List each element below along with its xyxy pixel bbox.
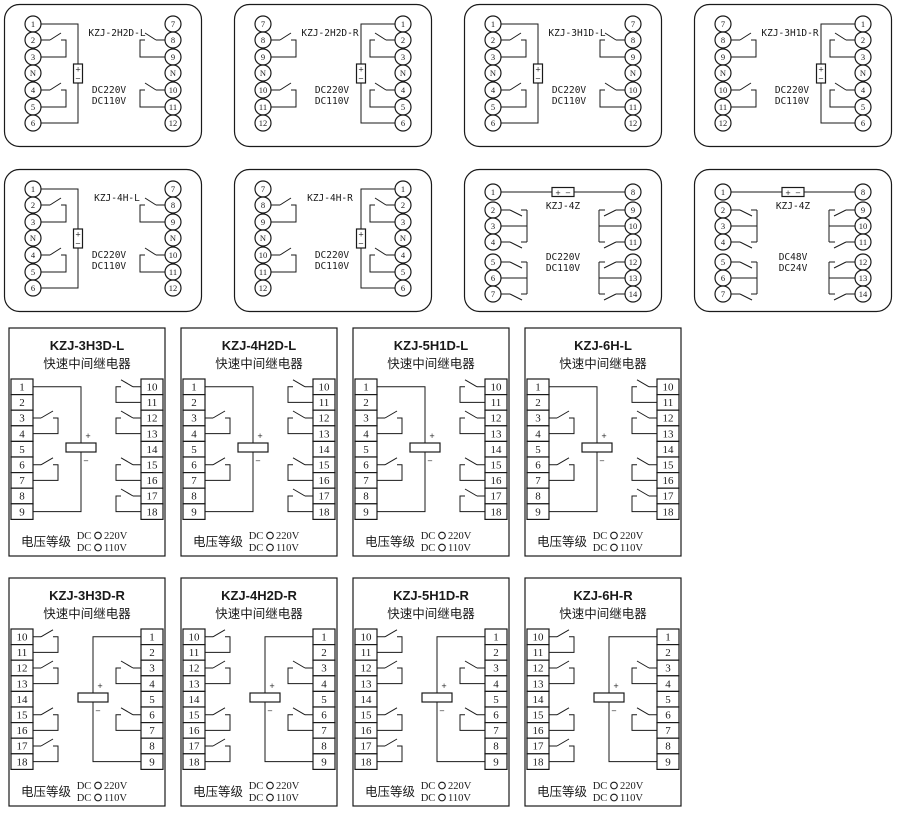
terminal-number: 15 <box>533 710 545 722</box>
terminal-number: 6 <box>401 118 405 128</box>
panel-subtitle: 快速中间继电器 <box>43 606 131 621</box>
terminal-number: 11 <box>147 397 158 409</box>
terminal-number: 11 <box>319 397 330 409</box>
row-4: KZJ-3H3D-R快速中间继电器10111212313414515616717… <box>8 577 900 807</box>
terminal-1: 1 <box>485 184 501 200</box>
panel-kzj-4z: 1234567891011121314+−KZJ-4ZDC48VDC24V <box>693 168 893 313</box>
terminal-number: 13 <box>147 428 159 440</box>
coil-minus-label: − <box>818 75 824 83</box>
terminal-number: 2 <box>535 397 541 409</box>
terminal-number: 8 <box>261 35 265 45</box>
terminal-number: 10 <box>259 250 268 260</box>
terminal-7: 7 <box>485 286 501 302</box>
coil-plus-label: + <box>613 682 619 690</box>
terminal-number: 4 <box>191 428 197 440</box>
terminal-number: 7 <box>631 19 635 29</box>
voltage-class-label: 电压等级 <box>365 534 416 549</box>
terminal-number: 3 <box>721 221 725 231</box>
terminal-number: 3 <box>493 663 499 675</box>
panel-subtitle: 快速中间继电器 <box>559 356 647 371</box>
terminal-number: 9 <box>493 756 499 768</box>
terminal-number: 8 <box>19 491 25 503</box>
voltage-option-circle <box>95 532 102 539</box>
voltage-option-circle <box>439 782 446 789</box>
terminal-number: 8 <box>861 187 865 197</box>
terminal-9: 9 <box>625 49 641 65</box>
terminal-number: 3 <box>491 52 495 62</box>
voltage-line-1: DC220V <box>315 85 350 96</box>
terminal-number: 12 <box>629 257 638 267</box>
terminal-number: 6 <box>191 460 197 472</box>
panel-kzj-4h2d-r: KZJ-4H2D-R快速中间继电器10111212313414515616717… <box>180 577 338 807</box>
terminal-11: 11 <box>255 99 271 115</box>
voltage-option-value: 110V <box>104 543 127 554</box>
terminal-number: 8 <box>721 35 725 45</box>
voltage-option-prefix: DC <box>421 543 436 554</box>
voltage-option-prefix: DC <box>593 793 608 804</box>
voltage-option-prefix: DC <box>249 531 264 542</box>
terminal-number: 7 <box>321 725 327 737</box>
voltage-option-prefix: DC <box>421 793 436 804</box>
terminal-1: 1 <box>395 181 411 197</box>
terminal-5: 5 <box>25 264 41 280</box>
terminal-12: 12 <box>165 115 181 131</box>
terminal-6: 6 <box>25 115 41 131</box>
terminal-N: N <box>395 65 411 81</box>
terminal-number: 16 <box>147 475 159 487</box>
coil-body <box>594 693 624 702</box>
coil-body <box>582 443 612 452</box>
terminal-5: 5 <box>715 254 731 270</box>
panel-kzj-3h1d-l: 123N456789N101112+−KZJ-3H1D-LDC220VDC110… <box>463 3 663 148</box>
panel-kzj-5h1d-l: KZJ-5H1D-L快速中间继电器11021131241351461571681… <box>352 327 510 557</box>
terminal-number: 6 <box>721 273 725 283</box>
voltage-line-2: DC110V <box>315 96 350 107</box>
terminal-number: 18 <box>663 506 675 518</box>
terminal-number: 3 <box>491 221 495 231</box>
terminal-12: 12 <box>165 280 181 296</box>
voltage-line-2: DC110V <box>546 263 581 274</box>
row-1: 123N456789N101112+−KZJ-2H2D-LDC220VDC110… <box>3 3 900 148</box>
terminal-8: 8 <box>255 32 271 48</box>
coil-plus-label: + <box>555 189 561 197</box>
terminal-number: 16 <box>189 725 201 737</box>
coil-minus-label: − <box>611 707 617 715</box>
terminal-2: 2 <box>395 32 411 48</box>
terminal-number: 5 <box>861 102 865 112</box>
coil-minus-label: − <box>358 240 364 248</box>
terminal-number: 12 <box>169 118 178 128</box>
terminal-number: 10 <box>17 632 29 644</box>
voltage-option-circle <box>267 794 274 801</box>
terminal-3: 3 <box>715 218 731 234</box>
terminal-number: 7 <box>491 289 495 299</box>
terminal-number: 10 <box>719 85 728 95</box>
terminal-number: 1 <box>401 19 405 29</box>
voltage-line-2: DC24V <box>779 263 808 274</box>
coil-body <box>238 443 268 452</box>
row-3: KZJ-3H3D-L快速中间继电器11021131241351461571681… <box>8 327 900 557</box>
voltage-option-circle <box>611 782 618 789</box>
voltage-option-value: 220V <box>104 531 128 542</box>
terminal-5: 5 <box>485 254 501 270</box>
terminal-number: 2 <box>19 397 25 409</box>
coil-minus-label: − <box>599 457 605 465</box>
voltage-class-label: 电压等级 <box>193 784 244 799</box>
terminal-number: 8 <box>535 491 541 503</box>
terminal-number: 6 <box>401 283 405 293</box>
coil-plus-label: + <box>75 231 81 239</box>
terminal-10: 10 <box>165 247 181 263</box>
terminal-number: 10 <box>169 85 178 95</box>
voltage-option-value: 220V <box>104 781 128 792</box>
panel-subtitle: 快速中间继电器 <box>215 356 303 371</box>
coil-plus-label: + <box>358 66 364 74</box>
voltage-option-circle <box>95 794 102 801</box>
coil-plus-label: + <box>818 66 824 74</box>
terminal-6: 6 <box>715 270 731 286</box>
terminal-10: 10 <box>625 218 641 234</box>
terminal-11: 11 <box>715 99 731 115</box>
terminal-5: 5 <box>395 99 411 115</box>
coil-minus-label: − <box>535 75 541 83</box>
terminal-12: 12 <box>715 115 731 131</box>
terminal-number: 9 <box>631 205 635 215</box>
panel-kzj-4h-r: 789N101112123N456+−KZJ-4H-RDC220VDC110V <box>233 168 433 313</box>
terminal-10: 10 <box>165 82 181 98</box>
terminal-number: 2 <box>149 647 155 659</box>
voltage-line-1: DC220V <box>546 252 581 263</box>
voltage-line-2: DC110V <box>775 96 810 107</box>
coil-plus-label: + <box>97 682 103 690</box>
terminal-number: 1 <box>31 184 35 194</box>
terminal-number: 16 <box>361 725 373 737</box>
terminal-number: 12 <box>319 413 330 425</box>
coil-minus-label: − <box>795 189 801 197</box>
voltage-option-prefix: DC <box>77 781 92 792</box>
terminal-1: 1 <box>485 16 501 32</box>
terminal-number: 17 <box>319 491 331 503</box>
coil-minus-label: − <box>75 240 81 248</box>
terminal-6: 6 <box>395 115 411 131</box>
terminal-number: N <box>630 68 636 78</box>
terminal-N: N <box>165 65 181 81</box>
terminal-number: N <box>400 68 406 78</box>
terminal-number: 6 <box>19 460 25 472</box>
coil-plus-label: + <box>785 189 791 197</box>
terminal-number: 9 <box>149 756 155 768</box>
panel-kzj-4h-l: 123N456789N101112+−KZJ-4H-LDC220VDC110V <box>3 168 203 313</box>
terminal-number: 9 <box>631 52 635 62</box>
terminal-number: 18 <box>533 756 545 768</box>
terminal-number: 6 <box>31 283 35 293</box>
terminal-2: 2 <box>485 202 501 218</box>
row-2: 123N456789N101112+−KZJ-4H-LDC220VDC110V7… <box>3 168 900 313</box>
terminal-number: N <box>260 233 266 243</box>
terminal-9: 9 <box>855 202 871 218</box>
terminal-number: 9 <box>363 506 369 518</box>
terminal-number: 13 <box>189 678 201 690</box>
voltage-option-value: 110V <box>276 793 299 804</box>
voltage-option-value: 110V <box>104 793 127 804</box>
terminal-number: 1 <box>401 184 405 194</box>
terminal-4: 4 <box>485 234 501 250</box>
voltage-option-prefix: DC <box>593 543 608 554</box>
terminal-4: 4 <box>715 234 731 250</box>
terminal-number: 5 <box>31 102 35 112</box>
terminal-number: N <box>30 68 36 78</box>
voltage-option-value: 110V <box>620 793 643 804</box>
terminal-number: 7 <box>171 184 175 194</box>
voltage-line-1: DC220V <box>92 85 127 96</box>
terminal-8: 8 <box>165 197 181 213</box>
voltage-option-value: 110V <box>448 793 471 804</box>
terminal-number: 4 <box>493 678 499 690</box>
terminal-number: 7 <box>665 725 671 737</box>
terminal-number: 11 <box>259 267 267 277</box>
terminal-number: 7 <box>721 289 725 299</box>
terminal-number: 7 <box>261 184 265 194</box>
coil-minus-label: − <box>83 457 89 465</box>
terminal-number: 1 <box>19 382 25 394</box>
terminal-13: 13 <box>855 270 871 286</box>
terminal-number: 6 <box>861 118 865 128</box>
terminal-number: 9 <box>261 52 265 62</box>
terminal-number: 5 <box>31 267 35 277</box>
terminal-number: 13 <box>361 678 373 690</box>
terminal-number: 17 <box>17 741 29 753</box>
terminal-number: 5 <box>401 267 405 277</box>
terminal-number: 15 <box>663 460 675 472</box>
terminal-number: 8 <box>171 200 175 210</box>
coil-plus-label: + <box>429 432 435 440</box>
voltage-option-value: 110V <box>448 543 471 554</box>
terminal-number: 3 <box>401 52 405 62</box>
voltage-option-circle <box>95 782 102 789</box>
terminal-number: 1 <box>535 382 541 394</box>
terminal-number: 11 <box>629 237 637 247</box>
terminal-number: N <box>260 68 266 78</box>
terminal-4: 4 <box>25 247 41 263</box>
voltage-option-prefix: DC <box>77 531 92 542</box>
voltage-line-1: DC220V <box>315 250 350 261</box>
terminal-number: 18 <box>17 756 29 768</box>
terminal-number: 4 <box>19 428 25 440</box>
voltage-class-label: 电压等级 <box>21 534 72 549</box>
panel-title: KZJ-3H1D-R <box>761 28 818 39</box>
terminal-number: 1 <box>721 187 725 197</box>
terminal-2: 2 <box>395 197 411 213</box>
terminal-number: 15 <box>319 460 331 472</box>
panel-subtitle: 快速中间继电器 <box>215 606 303 621</box>
coil-plus-label: + <box>601 432 607 440</box>
terminal-11: 11 <box>855 234 871 250</box>
terminal-number: 12 <box>189 663 200 675</box>
terminal-number: 15 <box>147 460 159 472</box>
terminal-number: 17 <box>663 491 675 503</box>
terminal-5: 5 <box>25 99 41 115</box>
terminal-11: 11 <box>165 264 181 280</box>
terminal-number: 12 <box>719 118 728 128</box>
terminal-number: 9 <box>19 506 25 518</box>
terminal-7: 7 <box>255 181 271 197</box>
terminal-number: 14 <box>859 289 868 299</box>
terminal-9: 9 <box>715 49 731 65</box>
terminal-number: 8 <box>631 187 635 197</box>
terminal-number: 3 <box>363 413 369 425</box>
terminal-9: 9 <box>255 49 271 65</box>
terminal-number: 16 <box>663 475 675 487</box>
terminal-number: 11 <box>361 647 372 659</box>
terminal-number: 7 <box>363 475 369 487</box>
terminal-number: 12 <box>259 118 268 128</box>
terminal-number: 3 <box>665 663 671 675</box>
voltage-option-prefix: DC <box>421 781 436 792</box>
terminal-N: N <box>485 65 501 81</box>
terminal-8: 8 <box>855 184 871 200</box>
terminal-number: 6 <box>665 710 671 722</box>
terminal-number: 12 <box>169 283 178 293</box>
terminal-N: N <box>255 230 271 246</box>
terminal-number: N <box>490 68 496 78</box>
terminal-N: N <box>855 65 871 81</box>
terminal-number: 1 <box>493 632 499 644</box>
voltage-option-value: 220V <box>448 781 472 792</box>
terminal-number: 16 <box>17 725 29 737</box>
terminal-number: 11 <box>169 102 177 112</box>
terminal-12: 12 <box>625 254 641 270</box>
terminal-number: 12 <box>259 283 268 293</box>
terminal-number: 2 <box>401 35 405 45</box>
terminal-number: 12 <box>147 413 158 425</box>
terminal-8: 8 <box>625 184 641 200</box>
terminal-number: 2 <box>401 200 405 210</box>
terminal-number: N <box>860 68 866 78</box>
voltage-line-2: DC110V <box>315 261 350 272</box>
terminal-10: 10 <box>625 82 641 98</box>
voltage-option-prefix: DC <box>249 543 264 554</box>
terminal-number: 8 <box>321 741 327 753</box>
panel-title: KZJ-4H2D-L <box>222 338 296 353</box>
terminal-number: 14 <box>147 444 159 456</box>
terminal-number: 11 <box>259 102 267 112</box>
terminal-number: 13 <box>319 428 331 440</box>
terminal-number: 13 <box>629 273 638 283</box>
terminal-number: 9 <box>861 205 865 215</box>
terminal-number: 2 <box>721 205 725 215</box>
terminal-number: 15 <box>491 460 503 472</box>
voltage-line-1: DC220V <box>92 250 127 261</box>
terminal-number: 11 <box>663 397 674 409</box>
terminal-3: 3 <box>485 49 501 65</box>
terminal-5: 5 <box>855 99 871 115</box>
terminal-number: 13 <box>859 273 868 283</box>
terminal-6: 6 <box>25 280 41 296</box>
coil-plus-label: + <box>75 66 81 74</box>
terminal-9: 9 <box>165 49 181 65</box>
terminal-number: 3 <box>31 217 35 227</box>
panel-kzj-3h3d-r: KZJ-3H3D-R快速中间继电器10111212313414515616717… <box>8 577 166 807</box>
voltage-option-value: 110V <box>620 543 643 554</box>
terminal-number: 5 <box>491 102 495 112</box>
terminal-11: 11 <box>625 99 641 115</box>
voltage-option-prefix: DC <box>249 793 264 804</box>
terminal-number: 8 <box>493 741 499 753</box>
terminal-number: 4 <box>149 678 155 690</box>
terminal-number: 12 <box>663 413 674 425</box>
terminal-3: 3 <box>485 218 501 234</box>
coil-body <box>66 443 96 452</box>
terminal-N: N <box>165 230 181 246</box>
coil-body <box>250 693 280 702</box>
terminal-number: 7 <box>493 725 499 737</box>
coil-minus-label: − <box>267 707 273 715</box>
terminal-number: 1 <box>191 382 197 394</box>
panel-title: KZJ-2H2D-L <box>88 28 145 39</box>
terminal-N: N <box>715 65 731 81</box>
terminal-number: 2 <box>191 397 197 409</box>
terminal-number: 6 <box>149 710 155 722</box>
voltage-option-value: 110V <box>276 543 299 554</box>
terminal-3: 3 <box>395 49 411 65</box>
terminal-number: 12 <box>859 257 868 267</box>
terminal-3: 3 <box>395 214 411 230</box>
terminal-number: 17 <box>533 741 545 753</box>
coil-plus-label: + <box>257 432 263 440</box>
terminal-number: 11 <box>629 102 637 112</box>
terminal-number: 10 <box>319 382 331 394</box>
terminal-14: 14 <box>625 286 641 302</box>
coil-plus-label: + <box>535 66 541 74</box>
panel-subtitle: 快速中间继电器 <box>387 606 475 621</box>
terminal-6: 6 <box>395 280 411 296</box>
terminal-number: 18 <box>189 756 201 768</box>
terminal-number: 10 <box>629 221 638 231</box>
terminal-1: 1 <box>855 16 871 32</box>
terminal-number: 11 <box>719 102 727 112</box>
terminal-8: 8 <box>255 197 271 213</box>
terminal-7: 7 <box>165 16 181 32</box>
terminal-number: 1 <box>861 19 865 29</box>
terminal-1: 1 <box>25 16 41 32</box>
terminal-number: 13 <box>533 678 545 690</box>
terminal-number: 3 <box>19 413 25 425</box>
terminal-1: 1 <box>25 181 41 197</box>
terminal-number: 2 <box>321 647 327 659</box>
voltage-option-prefix: DC <box>421 531 436 542</box>
terminal-number: 1 <box>491 187 495 197</box>
panel-title: KZJ-3H1D-L <box>548 28 605 39</box>
terminal-number: 11 <box>533 647 544 659</box>
terminal-5: 5 <box>395 264 411 280</box>
terminal-10: 10 <box>855 218 871 234</box>
terminal-number: 8 <box>631 35 635 45</box>
terminal-number: 8 <box>665 741 671 753</box>
panel-title: KZJ-3H3D-L <box>50 338 124 353</box>
terminal-number: 5 <box>321 694 327 706</box>
panel-kzj-3h1d-r: 789N101112123N456+−KZJ-3H1D-RDC220VDC110… <box>693 3 893 148</box>
voltage-option-value: 220V <box>448 531 472 542</box>
terminal-number: 3 <box>401 217 405 227</box>
terminal-12: 12 <box>625 115 641 131</box>
terminal-number: N <box>170 68 176 78</box>
terminal-number: 1 <box>363 382 369 394</box>
terminal-4: 4 <box>25 82 41 98</box>
terminal-number: 10 <box>533 632 545 644</box>
voltage-line-1: DC48V <box>779 252 808 263</box>
panel-kzj-2h2d-l: 123N456789N101112+−KZJ-2H2D-LDC220VDC110… <box>3 3 203 148</box>
terminal-number: 11 <box>491 397 502 409</box>
